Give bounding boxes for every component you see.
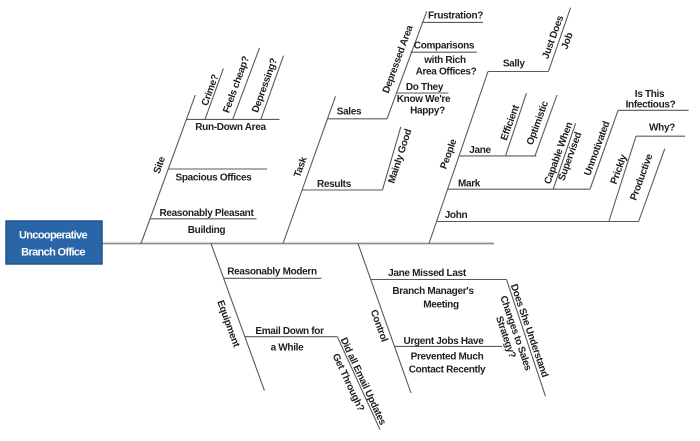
svg-text:Prevented Much: Prevented Much (411, 352, 484, 363)
svg-text:Urgent Jobs Have: Urgent Jobs Have (404, 336, 485, 347)
svg-text:Branch Office: Branch Office (21, 247, 85, 259)
svg-text:Why?: Why? (649, 123, 675, 134)
svg-text:Email Down for: Email Down for (255, 326, 324, 337)
svg-text:with Rich: with Rich (423, 55, 466, 66)
svg-text:Is This: Is This (635, 89, 665, 100)
svg-text:Mark: Mark (458, 179, 481, 190)
svg-text:Building: Building (188, 225, 226, 236)
svg-text:Frustration?: Frustration? (428, 11, 483, 22)
svg-text:Know We're: Know We're (397, 94, 451, 105)
svg-text:Meeting: Meeting (423, 300, 459, 311)
svg-text:Sally: Sally (503, 59, 526, 70)
svg-text:Reasonably Pleasant: Reasonably Pleasant (160, 208, 255, 219)
svg-text:Uncooperative: Uncooperative (19, 230, 87, 242)
svg-text:John: John (445, 210, 468, 221)
svg-text:Area Offices?: Area Offices? (416, 67, 477, 78)
svg-text:Jane Missed Last: Jane Missed Last (388, 268, 467, 279)
svg-text:Happy?: Happy? (410, 106, 445, 117)
svg-text:Infectious?: Infectious? (626, 100, 676, 111)
svg-text:Branch Manager's: Branch Manager's (392, 286, 474, 297)
svg-text:Comparisons: Comparisons (414, 41, 475, 52)
svg-text:Reasonably Modern: Reasonably Modern (227, 267, 317, 278)
svg-text:Spacious Offices: Spacious Offices (175, 173, 252, 184)
svg-text:Do They: Do They (406, 82, 444, 93)
svg-text:Results: Results (317, 179, 352, 190)
svg-text:Sales: Sales (337, 107, 362, 118)
svg-text:Jane: Jane (469, 145, 491, 156)
svg-text:a While: a While (271, 343, 305, 354)
svg-text:Contact Recently: Contact Recently (409, 365, 486, 376)
svg-text:Run-Down Area: Run-Down Area (195, 122, 266, 133)
